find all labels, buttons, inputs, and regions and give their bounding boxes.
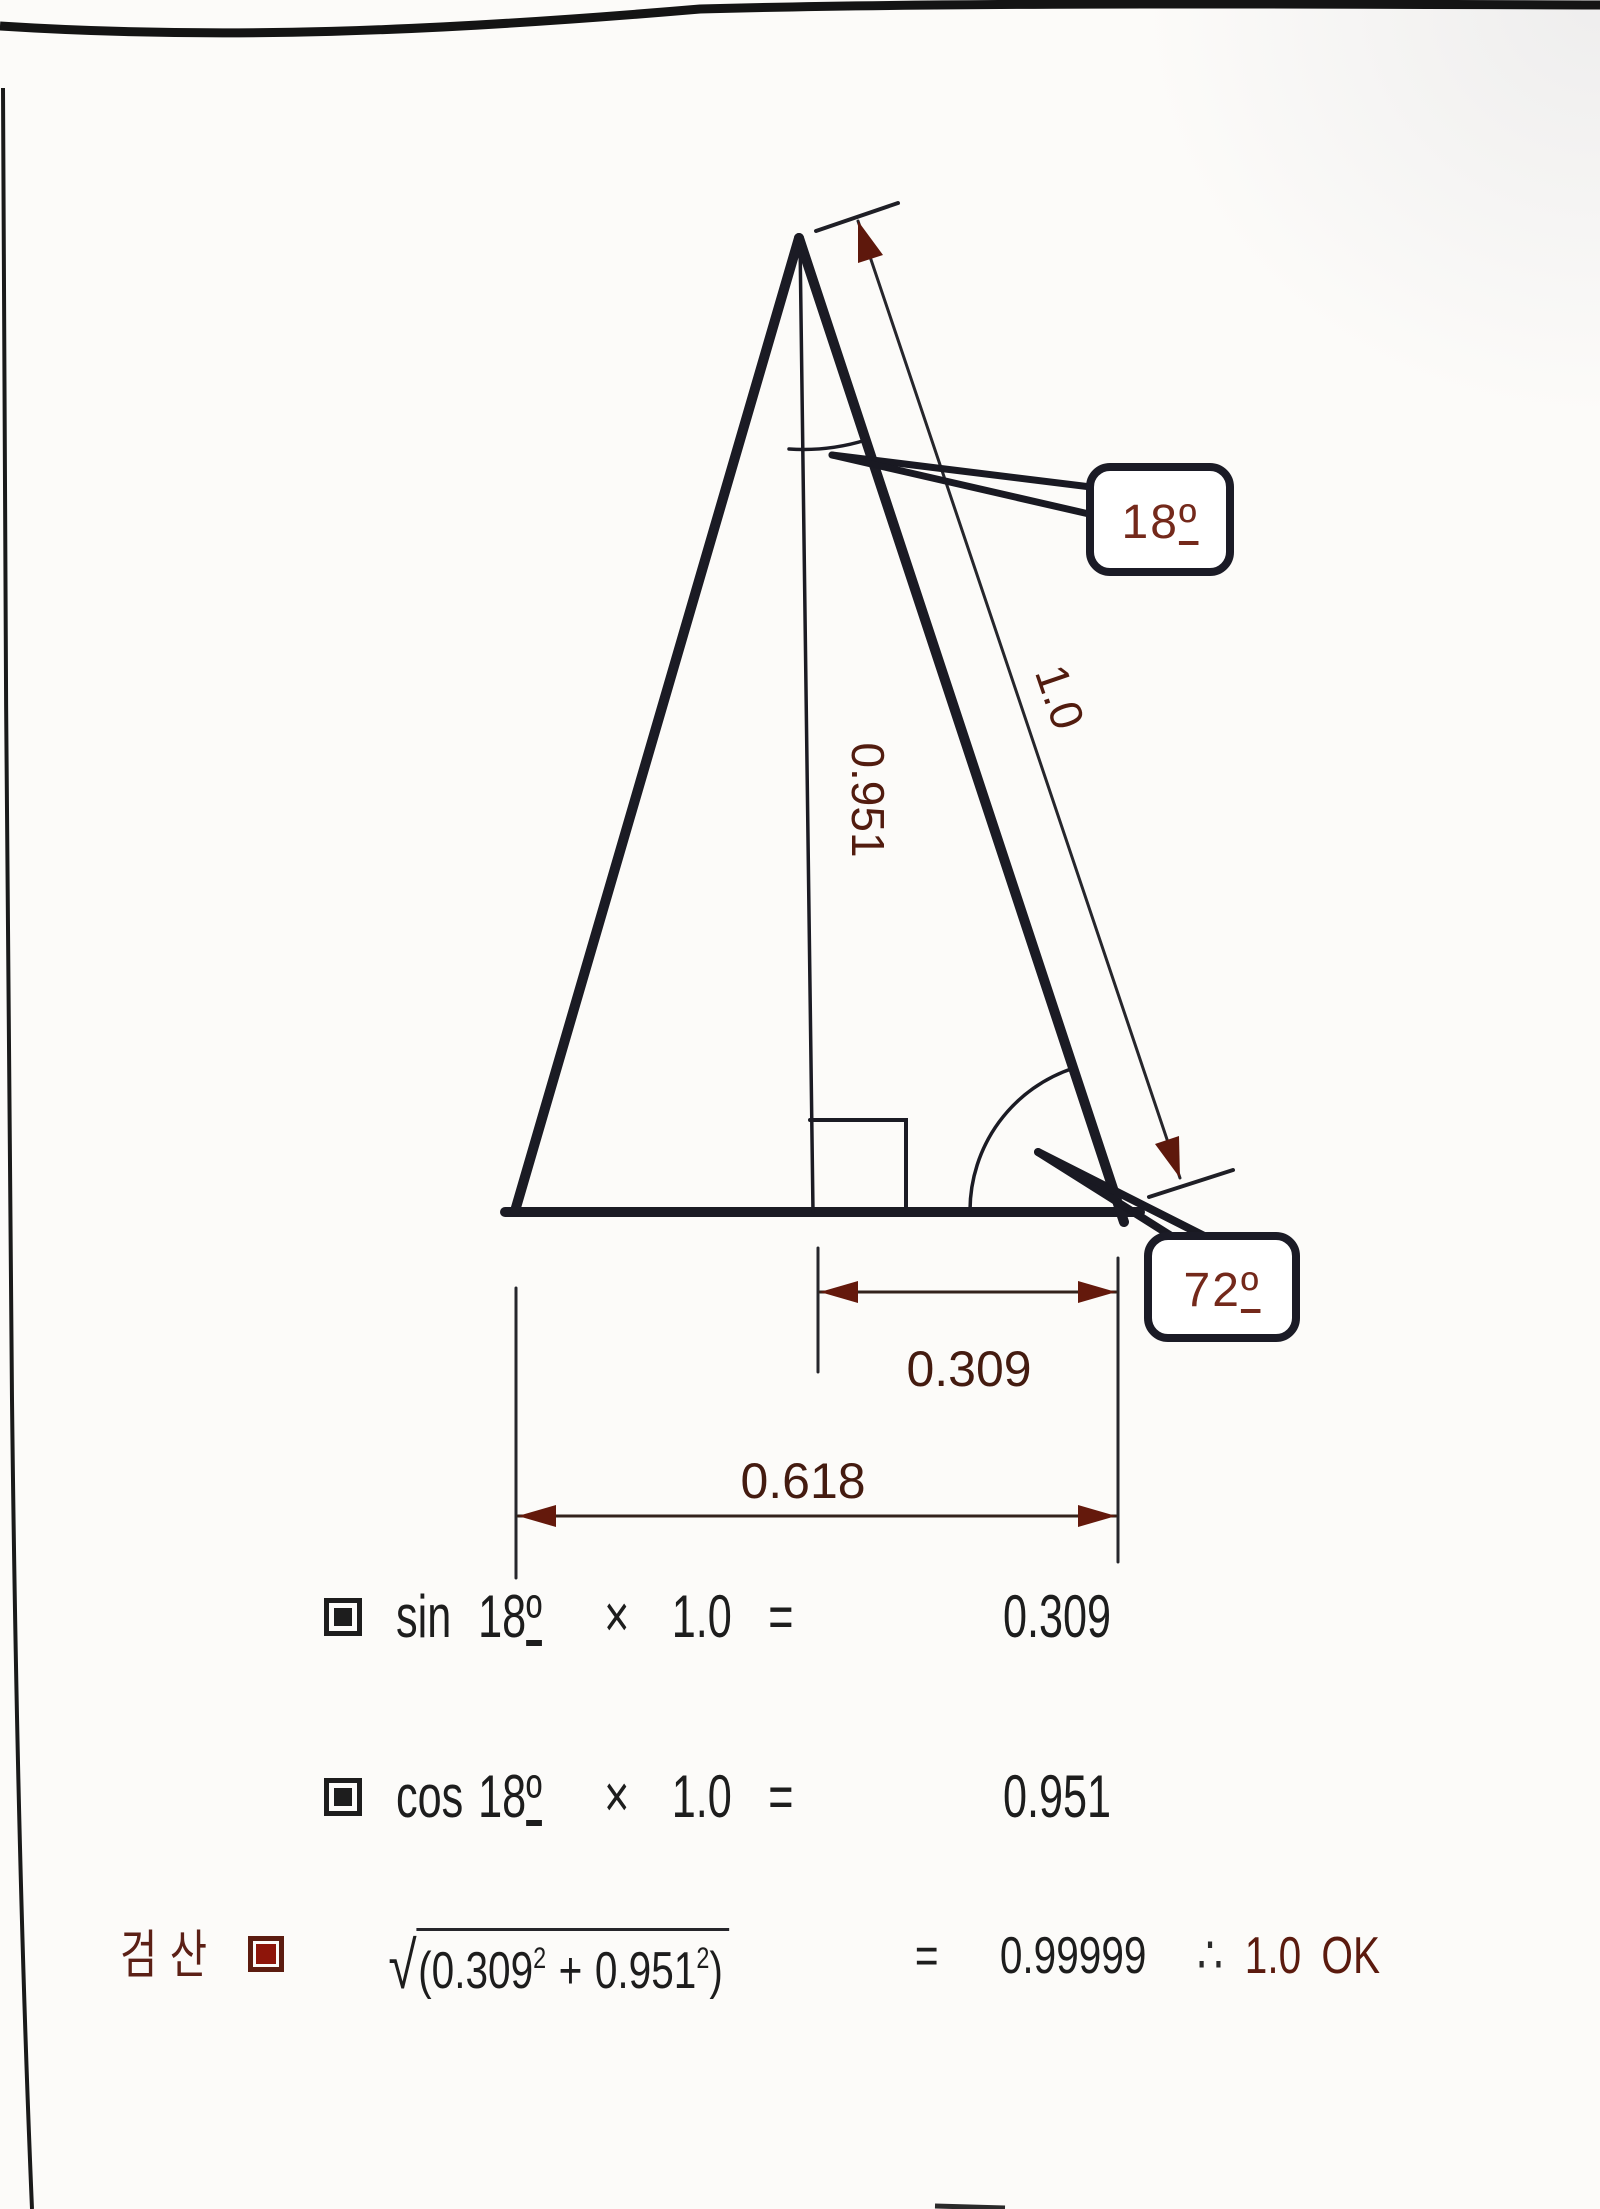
triangle-left-side [515,238,799,1211]
hypotenuse-arrow-bottom [1155,1136,1180,1178]
cos-equals-sign: = [768,1762,793,1832]
arrow-0309-left [820,1281,858,1303]
cos-times-sign: × [604,1762,629,1832]
altitude-line [800,240,813,1212]
cos-factor: 1.0 [672,1762,732,1832]
arrow-0618-left [518,1505,556,1527]
sin-factor: 1.0 [672,1582,732,1652]
therefore-sign: ∴ [1197,1928,1223,1984]
base-angle-label: 72º [1157,1263,1287,1318]
base-dimension-label: 0.618 [718,1452,888,1510]
verification-formula-row: 검산 √(0.3092+0.9512) = 0.99999 ∴ 1.0OK [120,1928,1600,1984]
half-base-dimension-label: 0.309 [884,1340,1054,1398]
callout-72-leader-lower [1038,1152,1214,1241]
base-angle-arc [970,1068,1074,1210]
apex-angle-value: 18 [1122,496,1179,549]
cos-angle: 18º [478,1762,542,1832]
scan-edge-top [0,4,1600,33]
check-conclusion: 1.0OK [1245,1928,1380,1984]
hypotenuse-arrow-top [858,221,883,263]
scanned-worksheet-page: 18º 72º 1.0 0.951 0.309 0.618 sin 18º × … [0,0,1600,2209]
hypotenuse-tick-bottom [1149,1170,1233,1197]
base-dimensions [516,1248,1118,1578]
base-angle-value: 72 [1184,1264,1241,1317]
cos-result: 0.951 [1003,1762,1111,1832]
right-angle-mark [810,1120,906,1212]
verification-label: 검산 [120,1928,220,1984]
base-angle-ordinal: º [1241,1264,1261,1317]
check-result: 0.99999 [1000,1928,1147,1984]
scan-mark-bottom [935,2206,1005,2208]
square-bullet-icon [324,1778,362,1816]
sin-equals-sign: = [768,1582,793,1652]
apex-angle-label: 18º [1097,495,1223,550]
scan-edge-left [3,88,32,2209]
sin-times-sign: × [604,1582,629,1652]
square-bullet-icon [324,1598,362,1636]
radicand: (0.3092+0.9512) [417,1928,730,1997]
apex-angle-ordinal: º [1179,496,1199,549]
check-equals-sign: = [915,1928,939,1984]
hypotenuse-dimension-line [858,221,1180,1178]
arrow-0309-right [1078,1281,1116,1303]
apex-angle-arc [789,440,866,449]
sin-result: 0.309 [1003,1582,1111,1652]
sin-func: sin [396,1582,451,1652]
radical-sign: √ [388,1928,416,2002]
height-length-label: 0.951 [838,740,898,860]
arrow-0618-right [1078,1505,1116,1527]
sin-formula-row: sin 18º × 1.0 = 0.309 [396,1582,1404,1652]
cos-formula-row: cos 18º × 1.0 = 0.951 [396,1762,1404,1832]
cos-func: cos [396,1762,463,1832]
sin-angle: 18º [478,1582,542,1652]
hypotenuse-dimension [816,203,1233,1197]
hypotenuse-tick-top [816,203,898,231]
sqrt-expression: √(0.3092+0.9512) [388,1928,729,1999]
triangle-diagram [0,0,1600,2209]
